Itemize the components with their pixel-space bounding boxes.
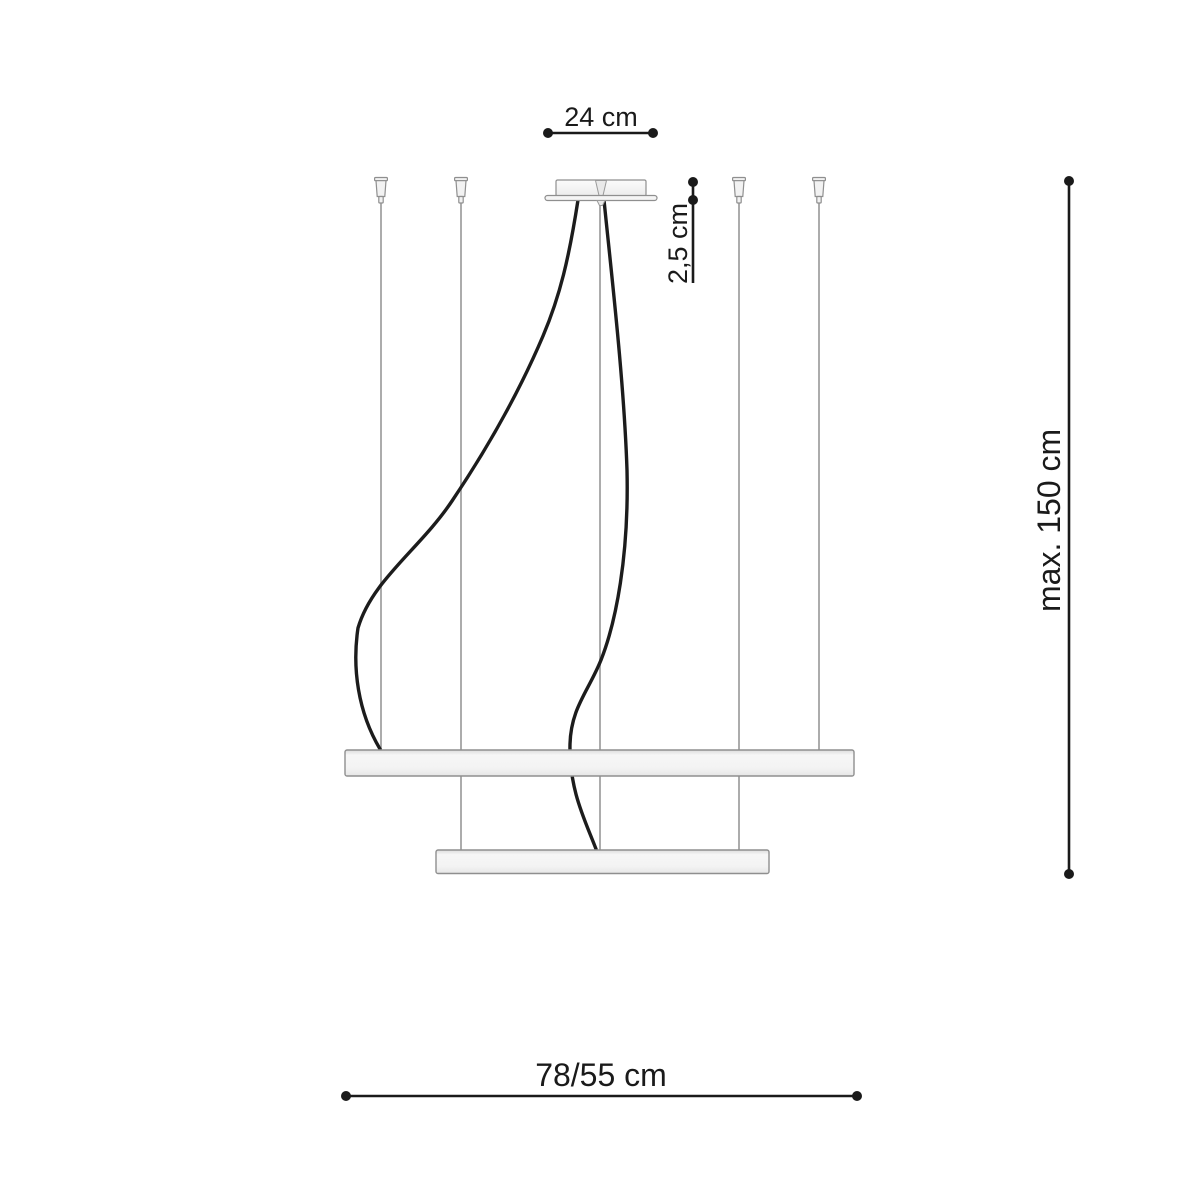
dimension-ring-diameters: 78/55 cm [341,1057,862,1101]
gripper-collar [459,197,463,204]
ring-diameters-label: 78/55 cm [535,1057,667,1093]
gripper-body [734,181,744,197]
dimension-canopy-width: 24 cm [543,102,658,138]
outer-ring-profile [345,750,854,776]
wire-gripper-1 [375,178,388,204]
canopy-plate [545,196,657,201]
pendant-lamp-dimension-diagram: 24 cm 2,5 cm max. 150 cm 78/5 [0,0,1200,1200]
dimension-endpoint-dot [688,177,698,187]
canopy-height-label: 2,5 cm [663,203,693,284]
gripper-body [814,181,824,197]
dimension-endpoint-dot [852,1091,862,1101]
dimension-endpoint-dot [648,128,658,138]
gripper-collar [737,197,741,204]
inner-ring-profile [436,850,769,874]
diagram-canvas: 24 cm 2,5 cm max. 150 cm 78/5 [0,0,1200,1200]
wire-gripper-2 [455,178,468,204]
gripper-body [376,181,386,197]
ceiling-canopy [545,180,657,206]
dimension-max-drop: max. 150 cm [1031,176,1074,879]
gripper-collar [379,197,383,204]
canopy-width-label: 24 cm [564,102,638,132]
dimension-canopy-height: 2,5 cm [663,177,698,284]
power-cable-to-outer-ring [356,200,578,749]
dimension-endpoint-dot [341,1091,351,1101]
dimension-endpoint-dot [1064,869,1074,879]
dimension-endpoint-dot [1064,176,1074,186]
dimension-endpoint-dot [543,128,553,138]
dimension-annotations: 24 cm 2,5 cm max. 150 cm 78/5 [341,102,1074,1101]
max-drop-label: max. 150 cm [1031,429,1067,612]
wire-gripper-4 [813,178,826,204]
gripper-body [456,181,466,197]
gripper-collar [817,197,821,204]
wire-gripper-3 [733,178,746,204]
